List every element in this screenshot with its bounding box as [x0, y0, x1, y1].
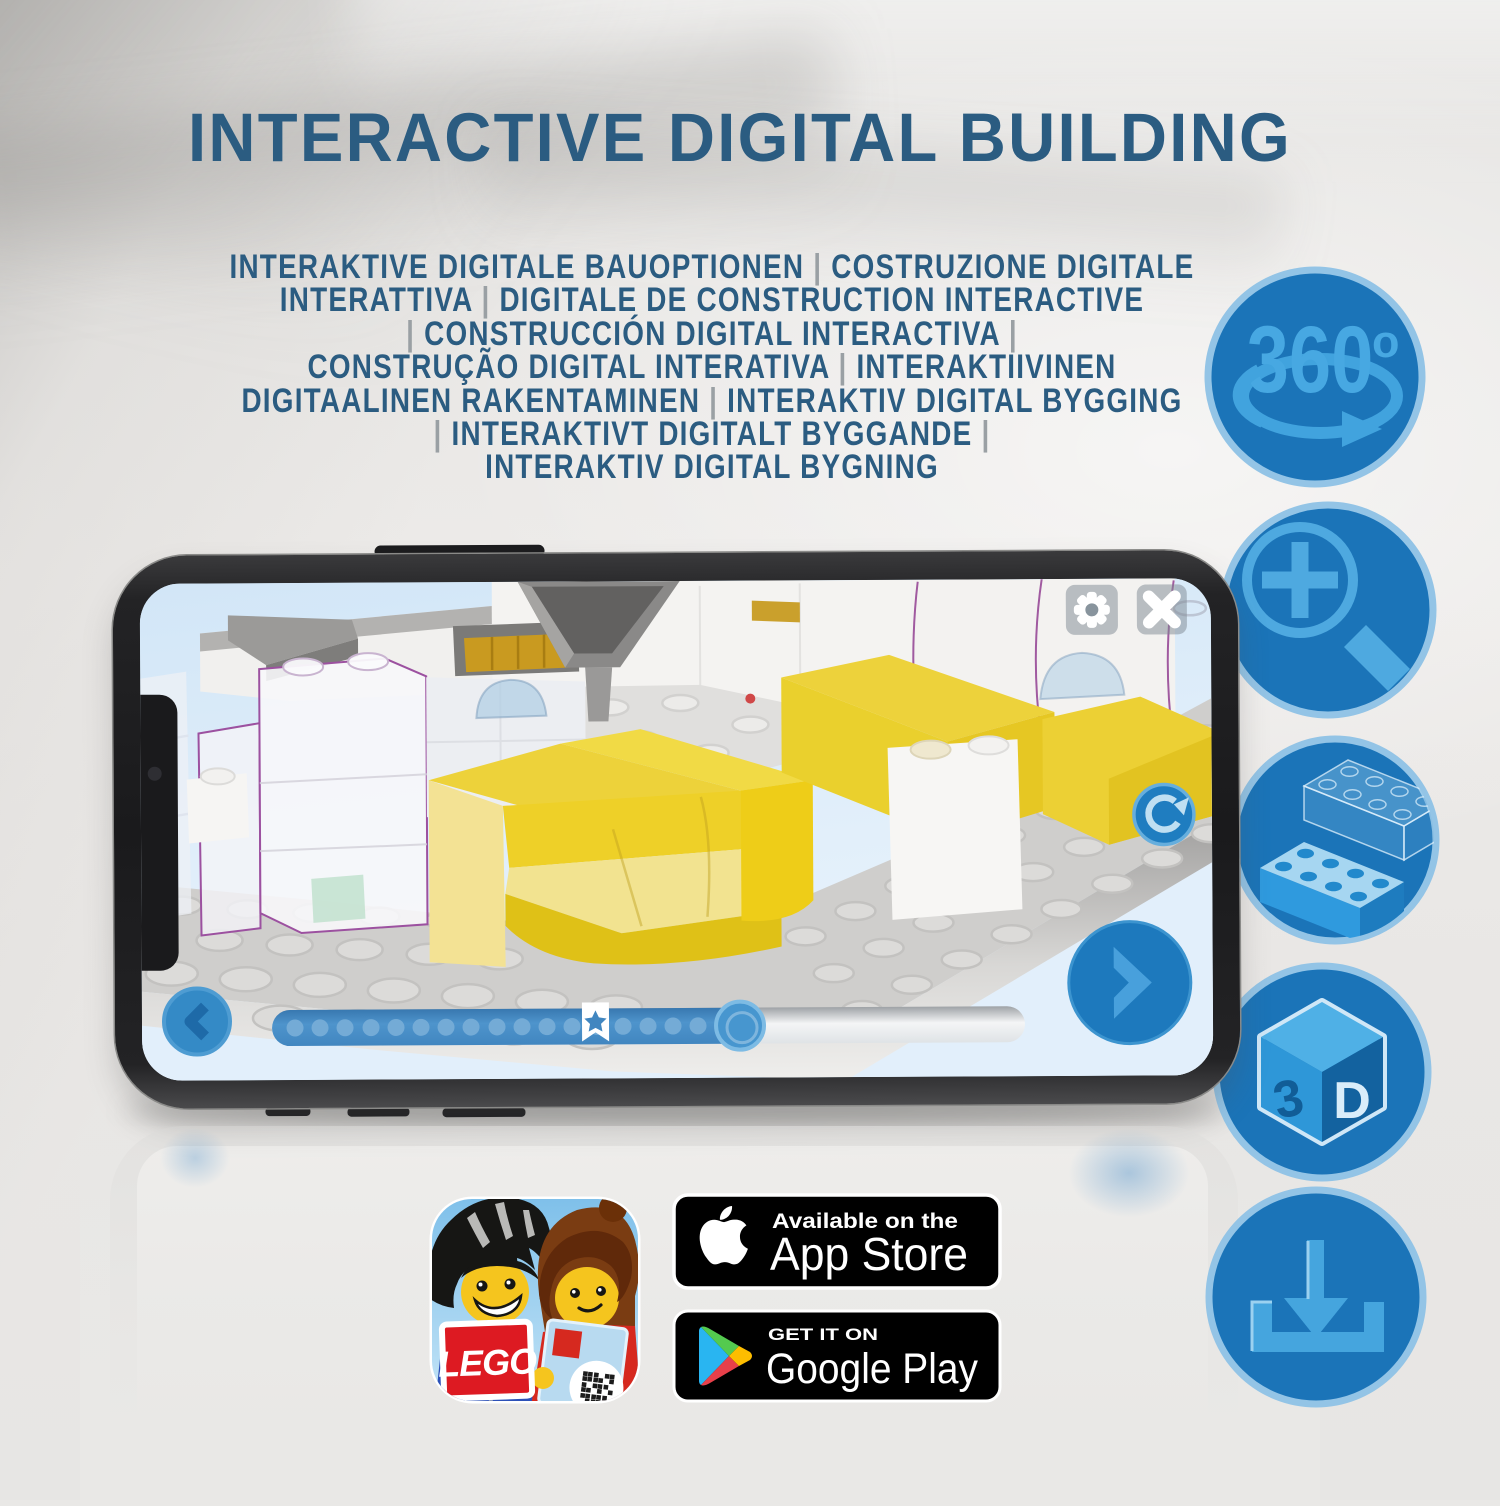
- svg-text:360: 360: [1247, 307, 1374, 413]
- svg-text:LEGO: LEGO: [437, 1340, 537, 1384]
- svg-text:o: o: [1372, 316, 1400, 367]
- svg-text:App Store: App Store: [770, 1228, 968, 1280]
- svg-text:D: D: [1333, 1072, 1371, 1130]
- svg-text:Google Play: Google Play: [766, 1345, 978, 1393]
- svg-text:GET IT ON: GET IT ON: [768, 1325, 878, 1344]
